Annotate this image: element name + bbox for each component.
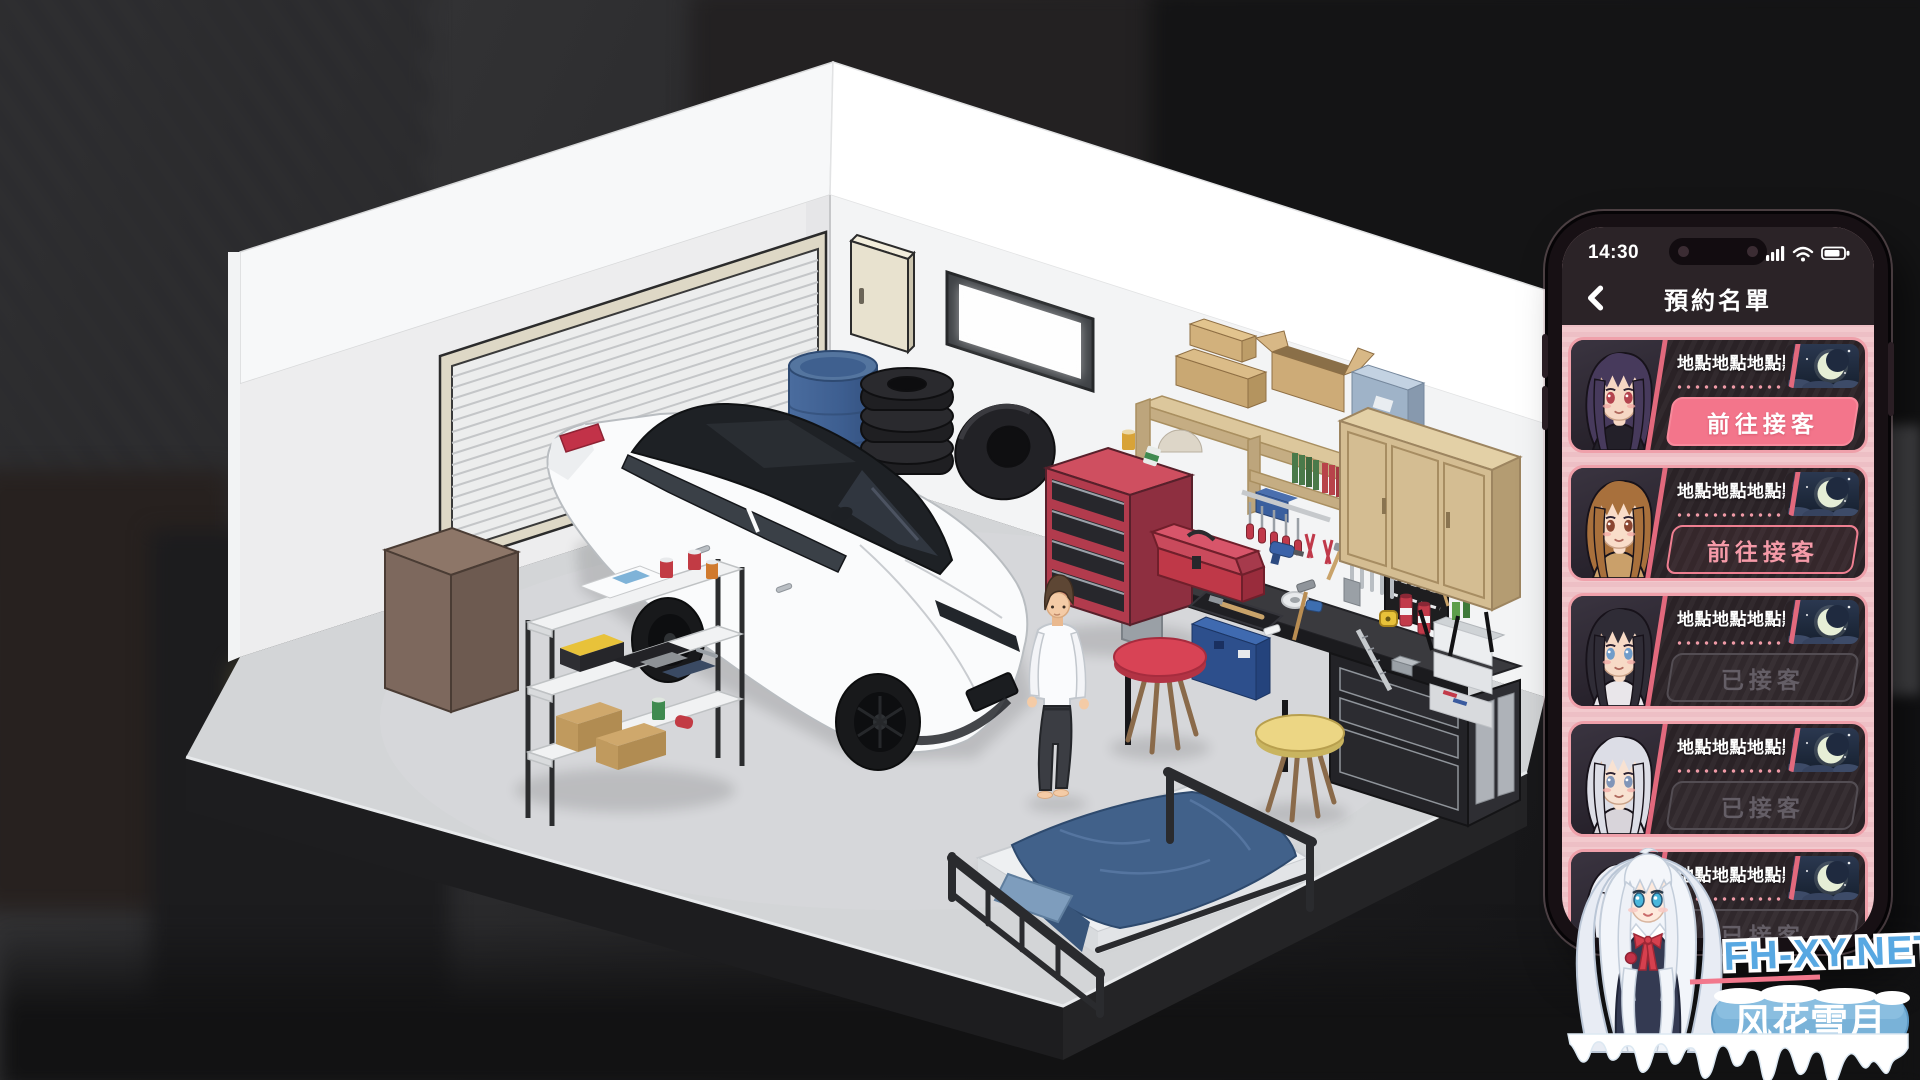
- reservation-card[interactable]: 地點地點地點點 已接客: [1568, 721, 1868, 837]
- game-screen: 14:30: [0, 0, 1920, 1080]
- phone-power-button: [1888, 342, 1894, 416]
- dotted-divider: [1675, 769, 1781, 773]
- dynamic-island: [1669, 238, 1767, 265]
- pickup-button[interactable]: 前往接客: [1665, 525, 1860, 574]
- night-moon-badge: [1785, 728, 1859, 772]
- served-button[interactable]: 已接客: [1665, 781, 1860, 830]
- reservation-card[interactable]: 地點地點地點點 已接客: [1568, 593, 1868, 709]
- night-moon-badge: [1785, 600, 1859, 644]
- location-text: 地點地點地點點: [1677, 603, 1800, 637]
- electrical-box: [851, 235, 914, 352]
- phone-screen: 14:30: [1562, 227, 1874, 938]
- reservation-card[interactable]: 地點地點地點點 前往接客: [1568, 465, 1868, 581]
- signal-bars-icon: [1766, 246, 1784, 261]
- reservation-card[interactable]: 地點地點地點點 前往接客: [1568, 337, 1868, 453]
- brown-cabinet: [385, 528, 518, 712]
- location-text: 地點地點地點點: [1677, 475, 1800, 509]
- night-moon-badge: [1785, 344, 1859, 388]
- status-icons: [1766, 244, 1850, 262]
- clock-time: 14:30: [1588, 242, 1639, 264]
- page-title: 預約名單: [1562, 281, 1874, 316]
- night-moon-badge: [1785, 856, 1859, 900]
- phone-header: 14:30: [1562, 227, 1874, 325]
- location-text: 地點地點地點點: [1677, 731, 1800, 765]
- location-text: 地點地點地點點: [1677, 859, 1800, 893]
- dotted-divider: [1675, 385, 1781, 389]
- nav-bar: 預約名單: [1562, 273, 1874, 325]
- location-text: 地點地點地點點: [1677, 347, 1800, 381]
- dotted-divider: [1675, 897, 1781, 901]
- reservation-card[interactable]: 地點地點地點點 已接客: [1568, 849, 1868, 938]
- dotted-divider: [1675, 641, 1781, 645]
- phone-panel: 14:30: [1548, 214, 1888, 951]
- phone-volume-down-button: [1542, 386, 1548, 430]
- served-button[interactable]: 已接客: [1665, 653, 1860, 702]
- night-moon-badge: [1785, 472, 1859, 516]
- wifi-icon: [1794, 248, 1812, 256]
- status-bar: 14:30: [1562, 227, 1874, 273]
- pickup-button[interactable]: 前往接客: [1665, 397, 1860, 446]
- dotted-divider: [1675, 513, 1781, 517]
- served-button[interactable]: 已接客: [1665, 909, 1860, 938]
- reservation-list: 地點地點地點點 前往接客 地點地點地點點: [1562, 325, 1874, 938]
- battery-icon: [1822, 248, 1850, 260]
- phone-volume-up-button: [1542, 334, 1548, 378]
